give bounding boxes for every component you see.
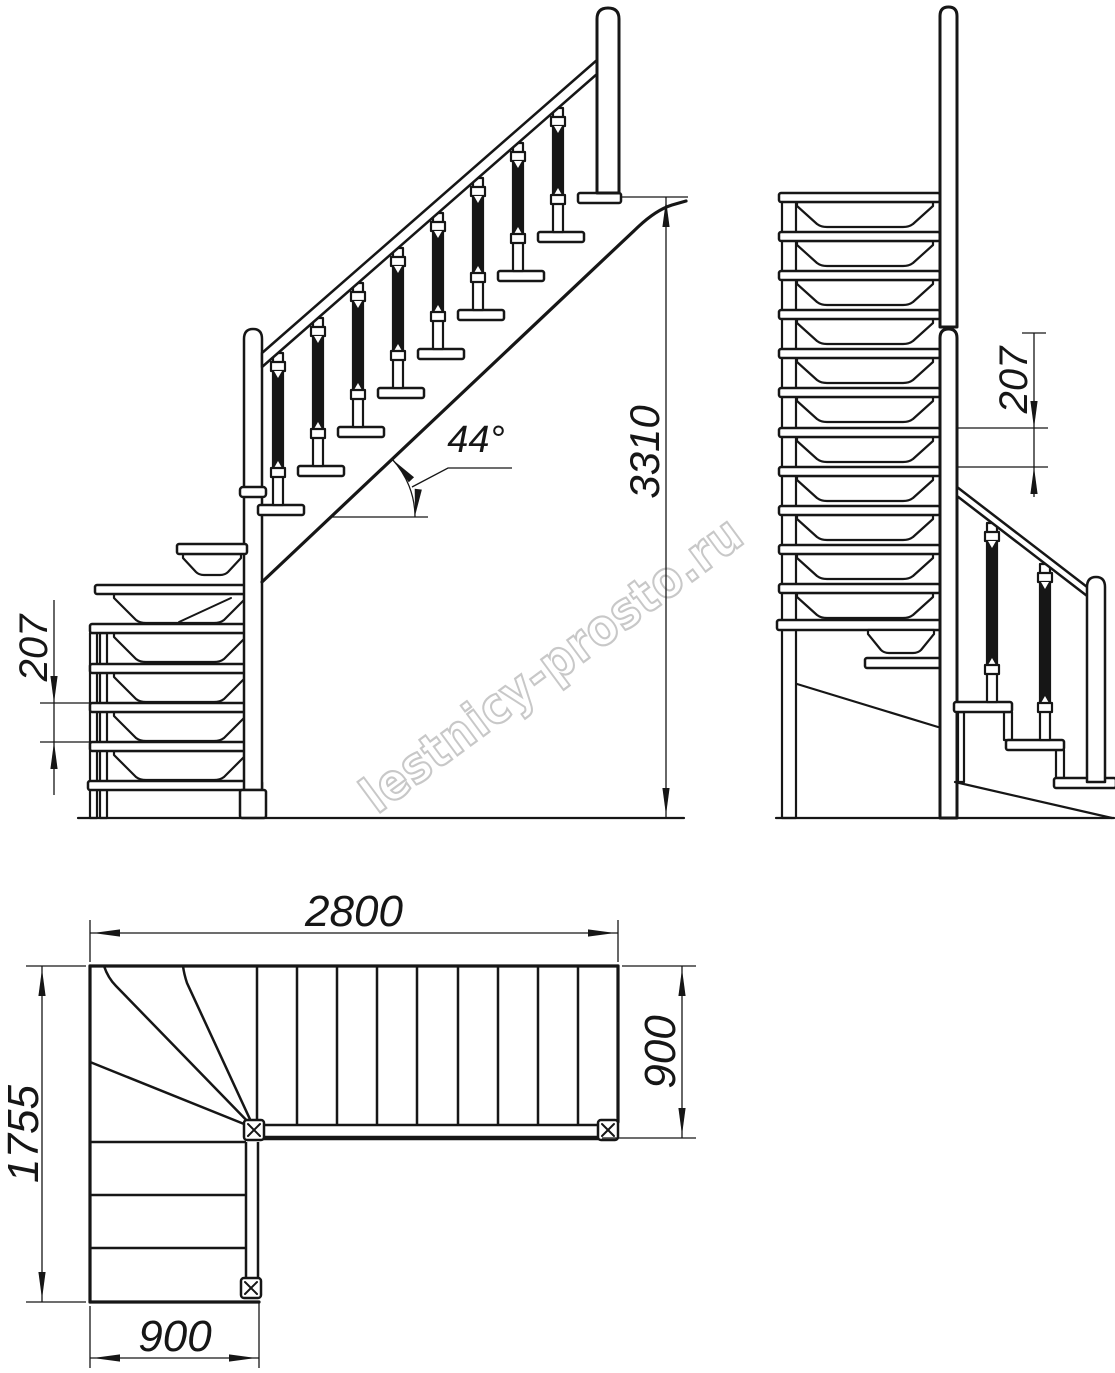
side-elevation: 207 — [776, 7, 1115, 818]
baluster-collar — [551, 117, 565, 126]
front-winder-step-stack — [88, 554, 262, 818]
baluster — [271, 353, 285, 505]
stack-tread-bar — [777, 620, 943, 630]
tread-tray — [797, 358, 933, 383]
dimension-total-depth: 1755 — [0, 966, 86, 1302]
baluster-collar — [351, 390, 365, 399]
total-depth-label: 1755 — [0, 1085, 48, 1183]
drawing-page: lestnicy-prosto.ru 3310 207 — [0, 0, 1115, 1373]
winder-tread-tray — [114, 673, 246, 702]
dimension-riser-front: 207 — [12, 600, 92, 795]
stack-tread-bar — [779, 193, 940, 202]
tread-tray — [797, 319, 933, 344]
newel-foot — [240, 790, 266, 818]
side-newel-post-lower — [940, 329, 957, 818]
dimension-lower-flight-width: 900 — [90, 1302, 259, 1368]
upper-flight-width-label: 900 — [636, 1015, 685, 1089]
tread-bar — [498, 271, 544, 281]
stack-tread-bar — [779, 349, 940, 358]
tread-bar — [258, 505, 304, 515]
tread-tray — [868, 630, 934, 653]
side-handrail — [957, 487, 1091, 599]
plan-upper-flight-treads — [257, 966, 578, 1125]
stack-tread-bar — [779, 428, 940, 437]
tread-tray — [797, 241, 933, 266]
baluster-collar — [985, 532, 999, 541]
dimension-upper-flight-width: 900 — [602, 966, 696, 1138]
baluster — [431, 213, 445, 349]
baluster-turned-section — [513, 161, 523, 234]
stack-tread-bar — [779, 310, 940, 319]
under-stringer-line — [797, 684, 938, 727]
winder-tread-tray — [114, 633, 246, 662]
winder-newel-post — [244, 329, 262, 790]
baluster-collar — [311, 327, 325, 336]
stair-technical-drawing: lestnicy-prosto.ru 3310 207 — [0, 0, 1115, 1373]
total-run-label: 2800 — [304, 887, 403, 936]
baluster-turned-section — [273, 371, 283, 468]
winder-tread-tray — [114, 594, 246, 623]
stack-tread-bar — [779, 545, 940, 554]
winder-tread-tray — [183, 554, 241, 575]
baluster-collar — [511, 234, 525, 243]
tread-tray — [797, 476, 933, 501]
stack-tread-bar — [90, 624, 258, 633]
stack-tread-bar — [90, 703, 258, 712]
tread-tray — [797, 437, 933, 462]
baluster-collar — [471, 187, 485, 196]
front-handrail — [262, 60, 597, 367]
baluster-collar — [391, 351, 405, 360]
tread-tray — [797, 593, 933, 618]
baluster-collar — [271, 468, 285, 477]
stack-tread-bar — [779, 232, 940, 241]
baluster-turned-section — [433, 231, 443, 312]
baluster — [1038, 564, 1052, 740]
baluster-turned-section — [473, 196, 483, 273]
stack-tread-bar — [90, 664, 258, 673]
baluster-collar — [985, 665, 999, 674]
plan-winder-fan — [90, 966, 254, 1128]
tread-tray — [797, 202, 933, 227]
tread-tray — [797, 515, 933, 540]
slope-angle-label: 44° — [447, 419, 504, 461]
baluster-turned-section — [553, 126, 563, 195]
baluster-collar — [431, 312, 445, 321]
baluster-collar — [271, 362, 285, 371]
baluster — [391, 248, 405, 388]
stack-tread-bar — [95, 585, 258, 594]
baluster-turned-section — [987, 541, 997, 665]
plan-lower-flight — [90, 1142, 258, 1278]
tread-tray — [797, 280, 933, 305]
baluster-turned-section — [1040, 582, 1050, 703]
baluster — [351, 283, 365, 427]
baluster-turned-section — [393, 266, 403, 351]
dimension-total-height: 3310 — [620, 197, 688, 817]
plan-view: 2800 900 1755 900 — [0, 887, 696, 1368]
tread-bar — [954, 702, 1012, 712]
front-elevation: 3310 207 44° — [12, 8, 688, 818]
tread-tray — [797, 554, 933, 579]
winder-tread-tray — [114, 751, 246, 780]
side-newel-post-upper — [940, 7, 957, 327]
plan-newel-marker — [241, 1278, 261, 1298]
baluster-collar — [351, 292, 365, 301]
watermark: lestnicy-prosto.ru — [350, 504, 754, 824]
tread-bar — [338, 427, 384, 437]
tread-support — [958, 712, 964, 782]
baluster-turned-section — [313, 336, 323, 429]
tread-tray — [797, 397, 933, 422]
lower-flight-width-label: 900 — [138, 1312, 212, 1361]
riser-height-label-side: 207 — [992, 345, 1036, 414]
tread-bar — [1006, 740, 1064, 750]
stack-tread-bar — [779, 584, 940, 593]
baluster — [511, 143, 525, 271]
baluster-collar — [1038, 573, 1052, 582]
winder-tread-tray — [114, 712, 246, 741]
baluster-collar — [391, 257, 405, 266]
dimension-riser-side: 207 — [957, 333, 1048, 497]
total-height-label: 3310 — [621, 405, 668, 499]
plan-newel-marker — [598, 1120, 618, 1140]
baluster-collar — [311, 429, 325, 438]
baluster-collar — [551, 195, 565, 204]
dimension-total-run: 2800 — [90, 887, 618, 962]
baluster — [471, 178, 485, 310]
top-newel-post — [597, 8, 619, 193]
baluster-collar — [511, 152, 525, 161]
stack-tread-bar — [779, 388, 940, 397]
baluster-collar — [471, 273, 485, 282]
baluster-collar — [1038, 703, 1052, 712]
stack-tread-bar — [779, 506, 940, 515]
plan-handrail — [263, 1125, 599, 1139]
stack-tread-bar — [779, 271, 940, 280]
stack-tread-bar — [88, 781, 262, 790]
stack-tread-bar — [90, 742, 258, 751]
tread-bar — [177, 544, 247, 554]
riser-face — [1056, 750, 1064, 778]
stack-tread-bar — [779, 467, 940, 476]
side-bottom-newel-post — [1087, 577, 1105, 782]
riser-height-label-front: 207 — [12, 613, 56, 682]
tread-bar — [538, 232, 584, 242]
plan-newel-marker — [244, 1120, 264, 1140]
newel-joint — [240, 487, 266, 497]
tread-bar — [418, 349, 464, 359]
baluster — [985, 523, 999, 702]
tread-bar — [298, 466, 344, 476]
tread-bar — [458, 310, 504, 320]
baluster — [551, 108, 565, 232]
riser-face — [1004, 712, 1012, 740]
baluster-turned-section — [353, 301, 363, 390]
tread-bar — [378, 388, 424, 398]
baluster — [311, 318, 325, 466]
baluster-collar — [431, 222, 445, 231]
